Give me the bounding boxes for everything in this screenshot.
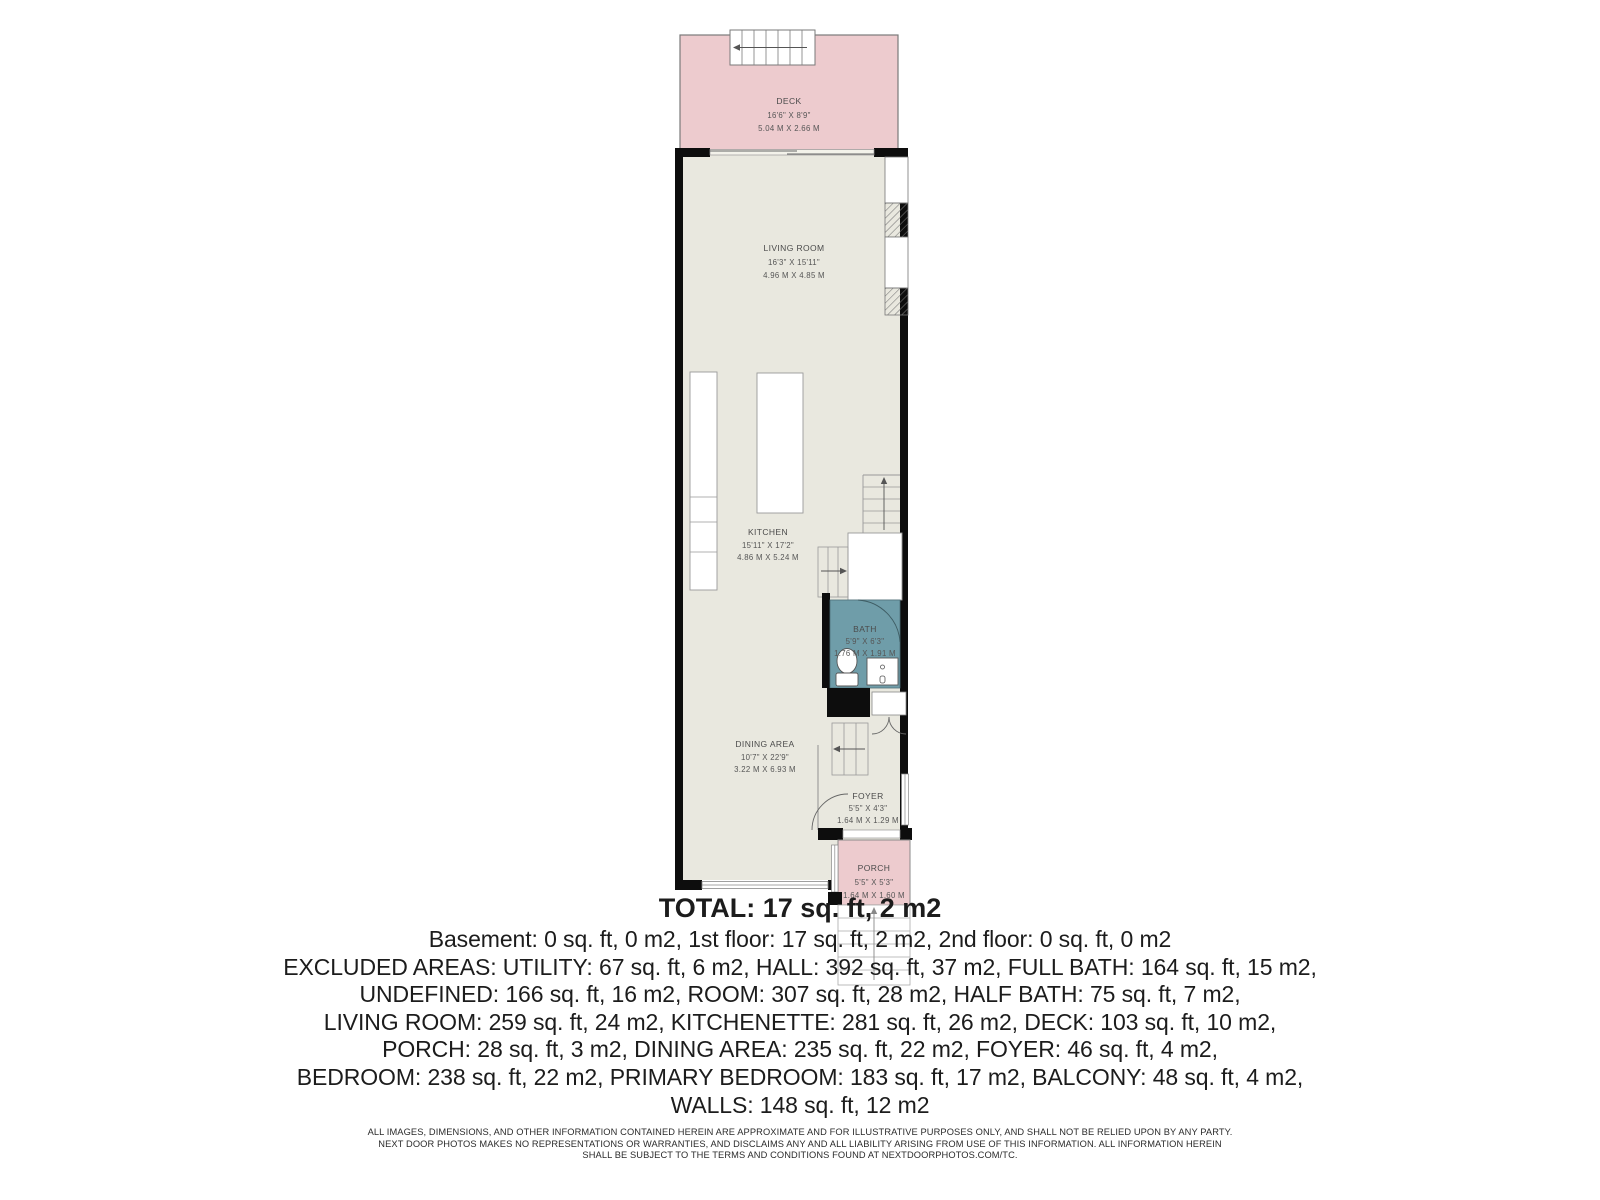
excluded-areas-line-2: UNDEFINED: 166 sq. ft, 16 m2, ROOM: 307 … <box>0 981 1600 1009</box>
dining-dim-metric: 3.22 M X 6.93 M <box>734 765 796 774</box>
excluded-areas-line-4: PORCH: 28 sq. ft, 3 m2, DINING AREA: 235… <box>0 1036 1600 1064</box>
bath-label: BATH <box>853 624 877 634</box>
bath-dim-metric: 1.76 M X 1.91 M <box>834 649 896 658</box>
porch-side-window-icon <box>832 845 839 892</box>
kitchen-dim-metric: 4.86 M X 5.24 M <box>737 553 799 562</box>
excluded-areas-line-1: EXCLUDED AREAS: UTILITY: 67 sq. ft, 6 m2… <box>0 954 1600 982</box>
walls-area-line: WALLS: 148 sq. ft, 12 m2 <box>0 1092 1600 1120</box>
bath-area: BATH 5'9" X 6'3" 1.76 M X 1.91 M <box>822 593 900 688</box>
deck-dim-imperial: 16'6" X 8'9" <box>767 111 810 120</box>
living-room-dim-metric: 4.96 M X 4.85 M <box>763 271 825 280</box>
porch-dim-imperial: 5'5" X 5'3" <box>855 878 894 887</box>
disclaimer-line-3: SHALL BE SUBJECT TO THE TERMS AND CONDIT… <box>0 1150 1600 1162</box>
bath-dim-imperial: 5'9" X 6'3" <box>846 637 885 646</box>
interior-wall-block <box>827 688 870 717</box>
disclaimer-line-1: ALL IMAGES, DIMENSIONS, AND OTHER INFORM… <box>0 1127 1600 1139</box>
foyer-side-window-icon <box>902 774 909 825</box>
dining-dim-imperial: 10'7" X 22'9" <box>741 753 789 762</box>
total-area-text: TOTAL: 17 sq. ft, 2 m2 <box>0 893 1600 923</box>
entry-wall <box>818 828 912 840</box>
excluded-areas-line-3: LIVING ROOM: 259 sq. ft, 24 m2, KITCHENE… <box>0 1009 1600 1037</box>
foyer-dim-metric: 1.64 M X 1.29 M <box>837 816 899 825</box>
deck-label: DECK <box>776 96 801 106</box>
chimney-hatch <box>885 157 908 315</box>
floorplan-page: DECK 16'6" X 8'9" 5.04 M X 2.66 M <box>0 0 1600 1200</box>
rear-window-icon <box>702 882 828 889</box>
floors-area-line: Basement: 0 sq. ft, 0 m2, 1st floor: 17 … <box>0 926 1600 954</box>
disclaimer-line-2: NEXT DOOR PHOTOS MAKES NO REPRESENTATION… <box>0 1139 1600 1151</box>
kitchen-counter-icon <box>690 372 717 590</box>
front-door-icon <box>843 830 900 838</box>
kitchen-label: KITCHEN <box>748 527 788 537</box>
deck-stairs-icon <box>730 30 815 65</box>
kitchen-island-icon <box>757 373 803 513</box>
living-room-area: LIVING ROOM 16'3" X 15'11" 4.96 M X 4.85… <box>763 243 825 280</box>
living-room-label: LIVING ROOM <box>763 243 824 253</box>
sliding-door-icon <box>710 150 874 156</box>
deck-area: DECK 16'6" X 8'9" 5.04 M X 2.66 M <box>680 30 898 150</box>
sink-icon <box>867 658 898 685</box>
disclaimer-text: ALL IMAGES, DIMENSIONS, AND OTHER INFORM… <box>0 1127 1600 1162</box>
stair-landing <box>848 533 902 600</box>
deck-dim-metric: 5.04 M X 2.66 M <box>758 124 820 133</box>
dining-area: DINING AREA 10'7" X 22'9" 3.22 M X 6.93 … <box>734 739 796 774</box>
kitchen-dim-imperial: 15'11" X 17'2" <box>742 541 794 550</box>
foyer-label: FOYER <box>852 791 883 801</box>
porch-label: PORCH <box>858 863 891 873</box>
living-room-dim-imperial: 16'3" X 15'11" <box>768 258 820 267</box>
floorplan-drawing: DECK 16'6" X 8'9" 5.04 M X 2.66 M <box>672 28 912 988</box>
foyer-dim-imperial: 5'5" X 4'3" <box>849 804 888 813</box>
dining-label: DINING AREA <box>735 739 794 749</box>
excluded-areas-line-5: BEDROOM: 238 sq. ft, 22 m2, PRIMARY BEDR… <box>0 1064 1600 1092</box>
area-summary: TOTAL: 17 sq. ft, 2 m2 Basement: 0 sq. f… <box>0 893 1600 1119</box>
